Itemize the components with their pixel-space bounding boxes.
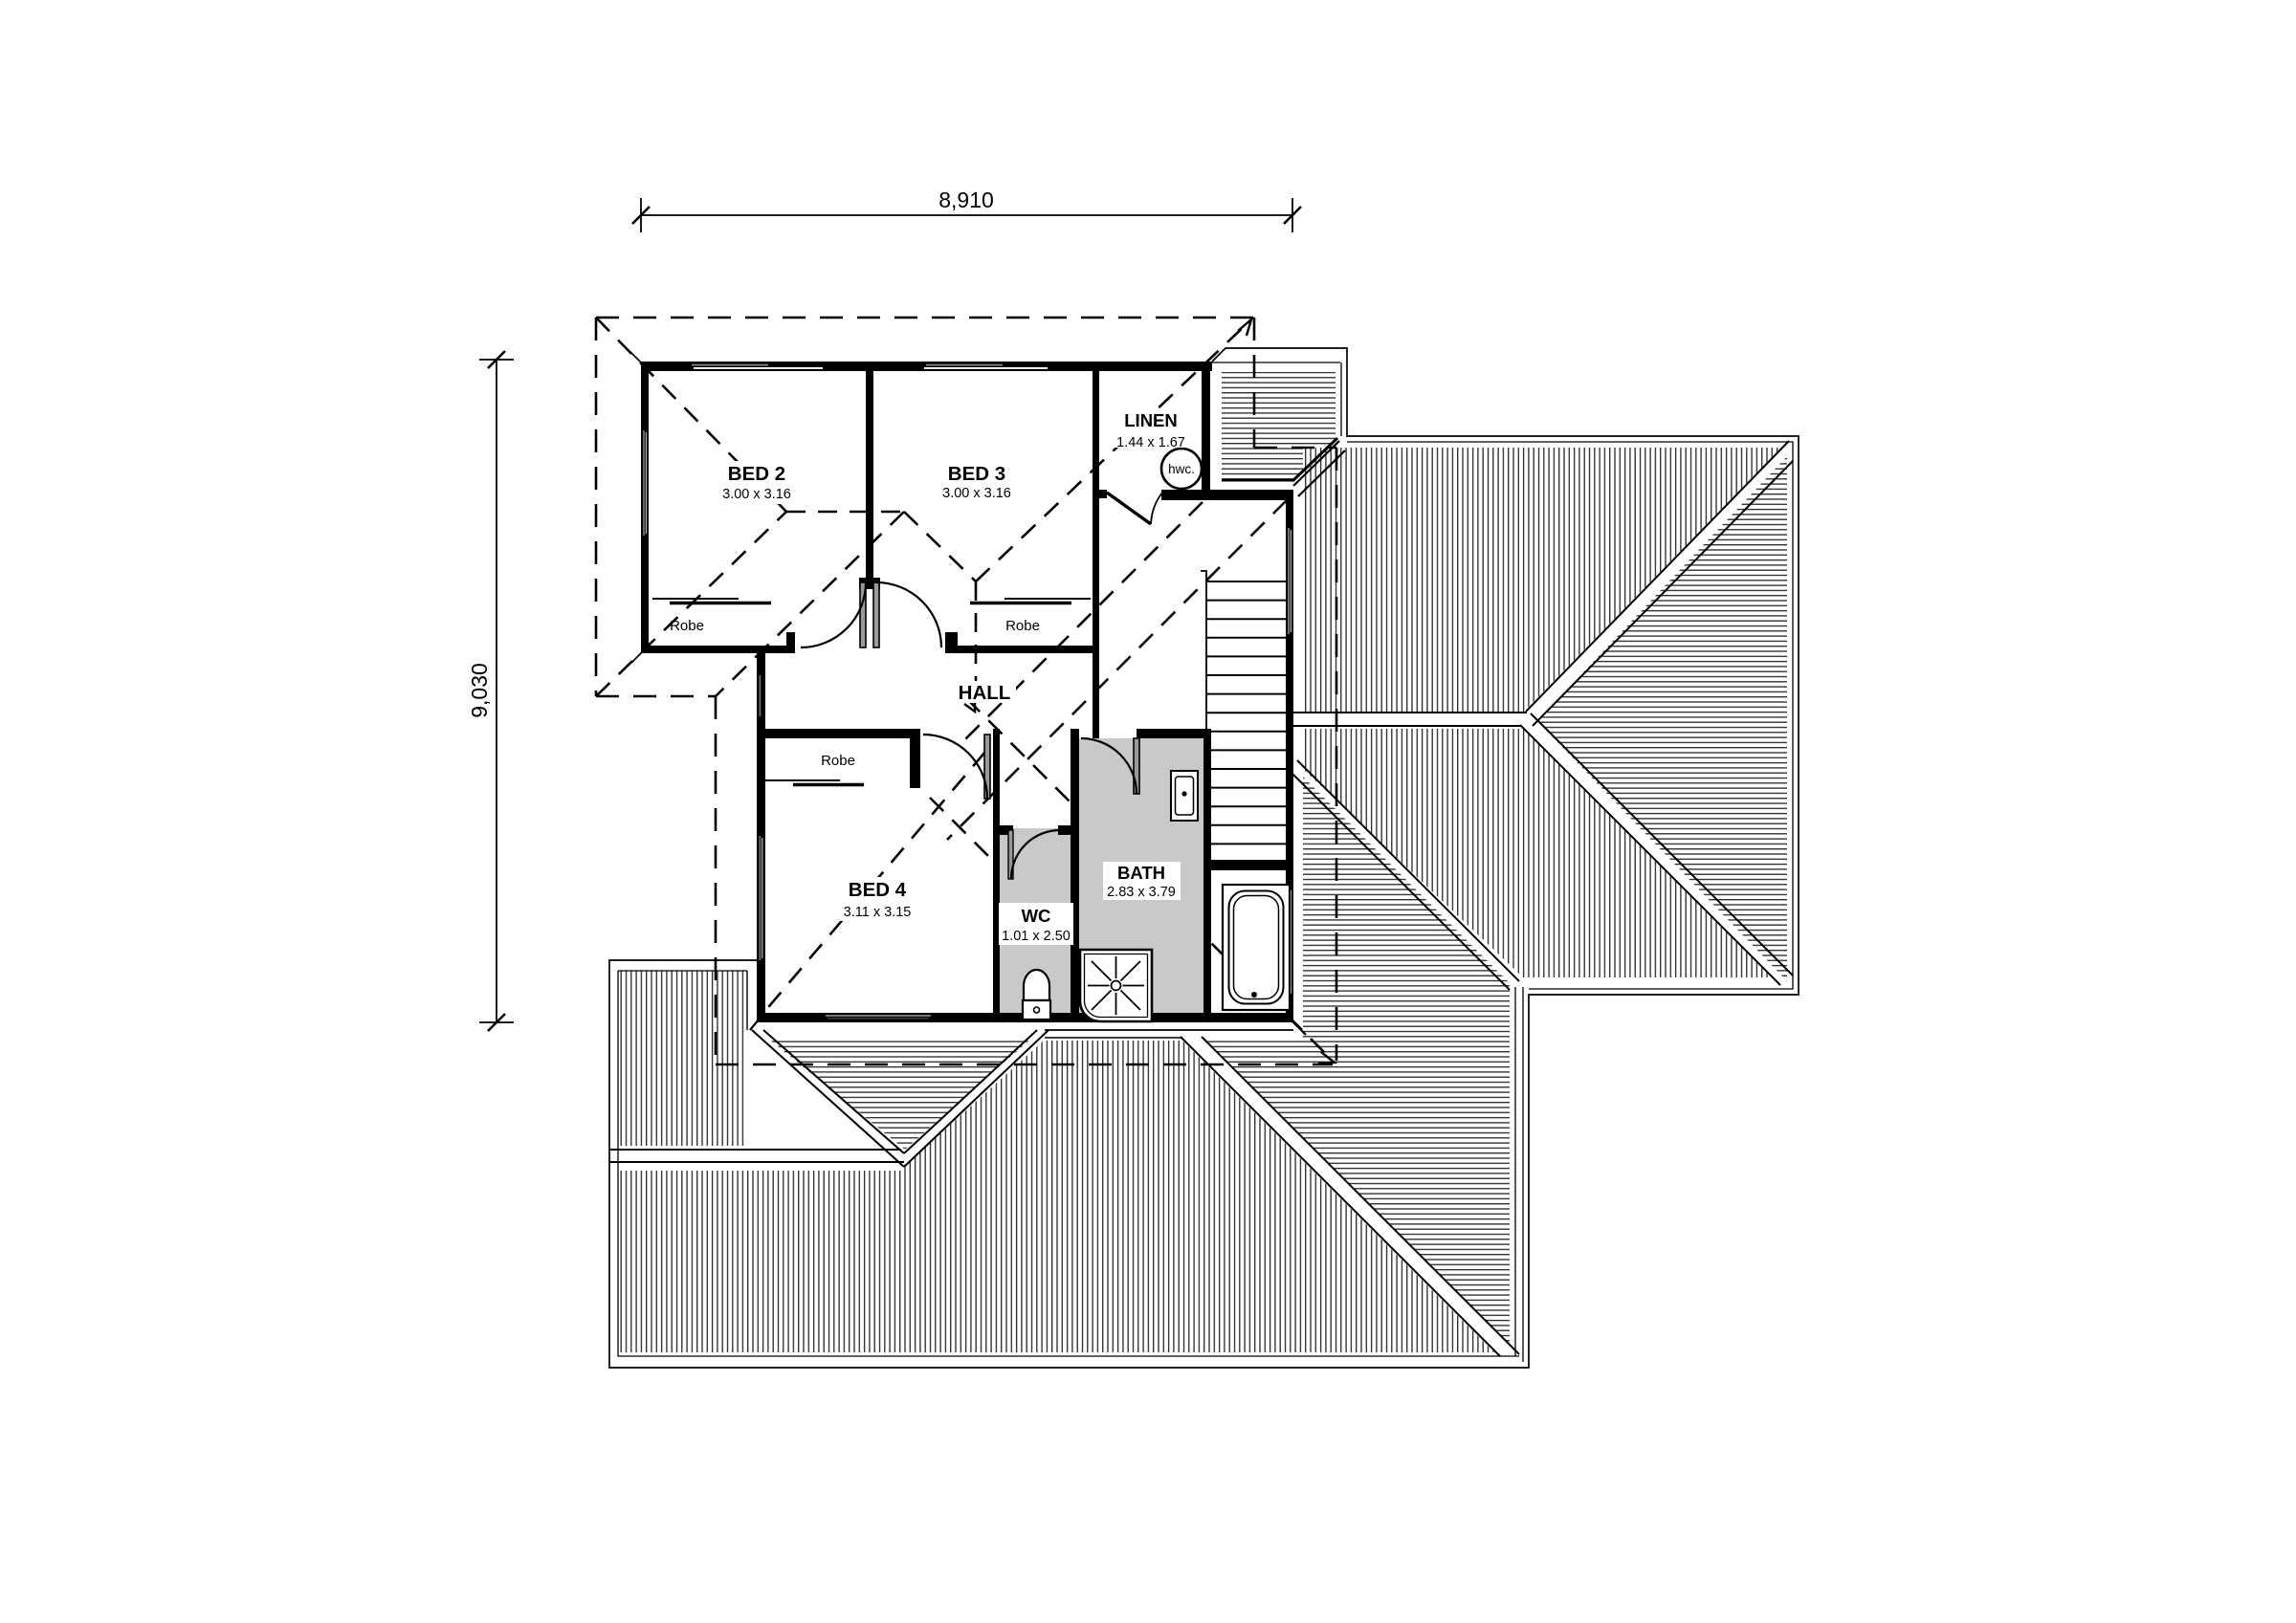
svg-text:9,030: 9,030 (467, 663, 492, 718)
svg-text:WC: WC (1022, 906, 1051, 926)
svg-text:3.00 x 3.16: 3.00 x 3.16 (722, 487, 791, 502)
svg-text:Robe: Robe (670, 618, 704, 634)
svg-text:Robe: Robe (821, 753, 855, 769)
svg-text:HALL: HALL (959, 682, 1011, 704)
svg-text:3.11 x 3.15: 3.11 x 3.15 (844, 905, 912, 920)
svg-text:hwc.: hwc. (1168, 462, 1195, 476)
svg-text:3.00 x 3.16: 3.00 x 3.16 (942, 486, 1011, 501)
svg-text:BATH: BATH (1117, 863, 1165, 883)
svg-text:LINEN: LINEN (1124, 410, 1178, 430)
svg-text:2.83 x 3.79: 2.83 x 3.79 (1107, 885, 1176, 900)
svg-text:8,910: 8,910 (938, 187, 994, 212)
svg-text:BED 2: BED 2 (728, 463, 785, 485)
svg-text:1.44 x 1.67: 1.44 x 1.67 (1116, 435, 1185, 450)
svg-text:BED 4: BED 4 (849, 879, 907, 901)
svg-text:BED 3: BED 3 (948, 463, 1005, 485)
svg-text:Robe: Robe (1005, 618, 1040, 634)
svg-text:1.01 x 2.50: 1.01 x 2.50 (1002, 929, 1071, 944)
